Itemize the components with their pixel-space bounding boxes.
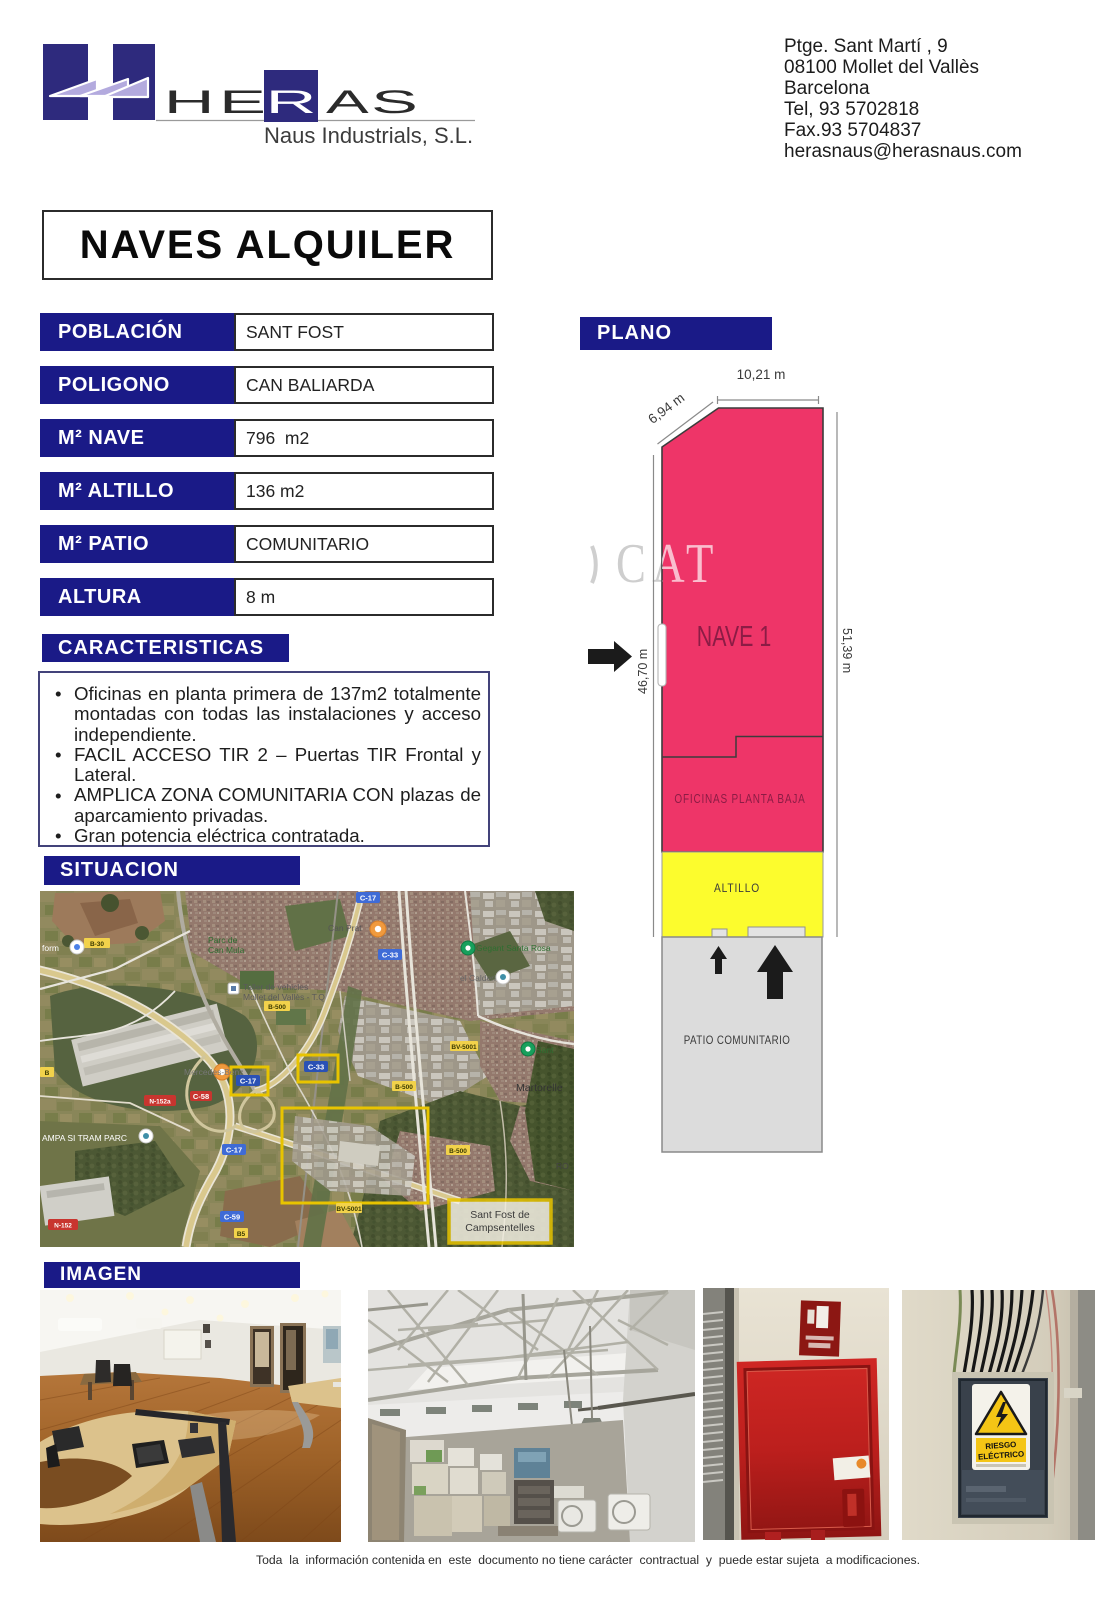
svg-text:B-500: B-500 xyxy=(395,1084,413,1091)
svg-text:Martorelle: Martorelle xyxy=(516,1082,563,1094)
svg-text:Mollet del Vallès - T.Q: Mollet del Vallès - T.Q xyxy=(243,992,325,1002)
svg-text:R: R xyxy=(266,84,317,120)
svg-text:H: H xyxy=(164,84,215,120)
svg-text:B5: B5 xyxy=(237,1231,246,1238)
svg-text:el Calderi: el Calderi xyxy=(460,973,496,983)
svg-text:Can Mula: Can Mula xyxy=(208,945,245,955)
svg-text:Can Prat: Can Prat xyxy=(328,923,362,933)
svg-text:E: E xyxy=(219,84,266,120)
svg-text:C-33: C-33 xyxy=(308,1063,324,1072)
svg-text:C-33: C-33 xyxy=(382,951,398,960)
svg-text:C-17: C-17 xyxy=(360,894,376,903)
svg-text:Mercedes-Benz: Mercedes-Benz xyxy=(184,1067,244,1077)
svg-text:RO: RO xyxy=(556,1161,569,1171)
svg-text:N-152: N-152 xyxy=(54,1223,72,1230)
svg-text:form: form xyxy=(42,943,59,953)
svg-text:Naus Industrials, S.L.: Naus Industrials, S.L. xyxy=(264,123,473,148)
svg-text:C-59: C-59 xyxy=(224,1213,240,1222)
svg-text:BV-5001: BV-5001 xyxy=(451,1044,477,1051)
svg-text:AMPA SI TRAM PARC: AMPA SI TRAM PARC xyxy=(42,1133,127,1143)
svg-text:Gegant Santa Rosa: Gegant Santa Rosa xyxy=(476,943,551,953)
svg-text:Taller de vehicles: Taller de vehicles xyxy=(243,982,308,992)
svg-text:A: A xyxy=(326,84,369,120)
svg-text:B-30: B-30 xyxy=(90,941,104,948)
svg-text:10,21 m: 10,21 m xyxy=(737,367,786,382)
svg-text:46,70 m: 46,70 m xyxy=(636,649,650,694)
svg-text:Sant: Sant xyxy=(536,1045,554,1055)
svg-text:51,39 m: 51,39 m xyxy=(840,628,854,673)
svg-text:PATIO COMUNITARIO: PATIO COMUNITARIO xyxy=(684,1034,790,1047)
svg-text:C-17: C-17 xyxy=(240,1077,256,1086)
svg-text:C-58: C-58 xyxy=(193,1092,209,1101)
svg-text:S: S xyxy=(371,84,418,120)
svg-text:B: B xyxy=(45,1070,50,1077)
svg-text:Sant Fost de: Sant Fost de xyxy=(470,1209,530,1221)
svg-text:B-500: B-500 xyxy=(268,1004,286,1011)
svg-text:C-17: C-17 xyxy=(226,1146,242,1155)
svg-text:ALTILLO: ALTILLO xyxy=(714,882,760,895)
svg-text:OFICINAS PLANTA BAJA: OFICINAS PLANTA BAJA xyxy=(674,793,805,806)
svg-text:Parc de: Parc de xyxy=(208,935,238,945)
svg-text:BV-5001: BV-5001 xyxy=(336,1206,362,1213)
svg-text:B-500: B-500 xyxy=(449,1148,467,1155)
svg-text:6,94 m: 6,94 m xyxy=(645,390,687,427)
svg-text:Campsentelles: Campsentelles xyxy=(465,1222,534,1234)
svg-text:N-152a: N-152a xyxy=(149,1099,171,1106)
svg-text:NAVE 1: NAVE 1 xyxy=(697,621,771,653)
